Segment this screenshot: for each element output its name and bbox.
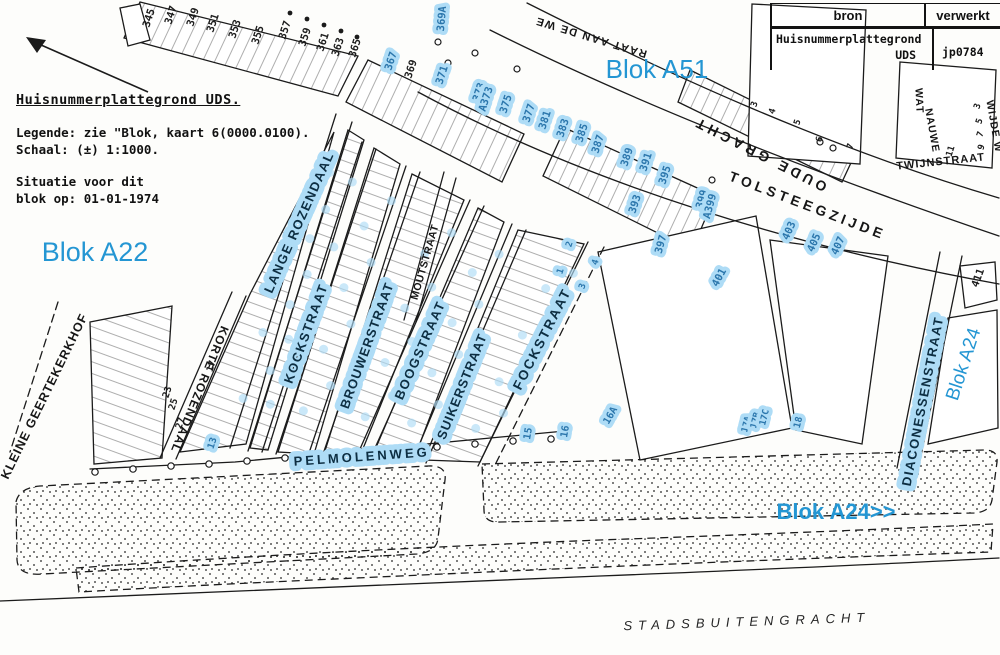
street-label-kleine-geertekerkhof: KLEINE GEERTEKERKHOF — [0, 311, 91, 481]
highlight-dot — [360, 222, 369, 231]
highlight-dot — [474, 300, 483, 309]
legend-title: Huisnummerplattegrond UDS. — [16, 92, 310, 108]
highlight-dot — [541, 284, 550, 293]
legend-line: Schaal: (±) 1:1000. — [16, 141, 310, 158]
highlight-dot — [321, 205, 330, 214]
info-table-header: bron verwerkt — [772, 4, 1000, 29]
header-verwerkt: verwerkt — [924, 4, 1000, 26]
highlight-dot — [299, 406, 308, 415]
map-canvas: KLEINE GEERTEKERKHOFKORTE ROZENDAALLANGE… — [0, 0, 1000, 655]
highlight-dot — [427, 368, 436, 377]
house-number: 3 — [578, 282, 589, 290]
highlight-dot — [266, 400, 275, 409]
highlight-dot — [319, 345, 328, 354]
highlight-dot — [447, 228, 456, 237]
info-table-row: Huisnummerplattegrond UDS jp0784 — [772, 29, 1000, 70]
highlight-dot — [448, 318, 457, 327]
house-number: 25 — [167, 397, 181, 412]
header-bron: bron — [772, 4, 924, 26]
house-number: 365 — [347, 37, 364, 59]
legend-line: Legende: zie "Blok, kaart 6(0000.0100). — [16, 124, 310, 141]
blok-label: Blok A51 — [606, 54, 709, 84]
house-number: 16A — [602, 405, 621, 426]
highlight-dot — [499, 409, 508, 418]
highlight-dot — [471, 424, 480, 433]
house-number: 23 — [161, 385, 175, 400]
highlight-dot — [468, 268, 477, 277]
highlight-dot — [348, 178, 357, 187]
info-table: bron verwerkt Huisnummerplattegrond UDS … — [770, 3, 1000, 70]
highlight-dot — [305, 234, 314, 243]
highlight-dot — [339, 283, 348, 292]
highlight-dot — [361, 412, 370, 421]
highlight-dot — [346, 320, 355, 329]
house-number: 369A — [435, 5, 449, 32]
legend-line: Situatie voor dit — [16, 173, 310, 190]
house-number: 357 — [277, 19, 294, 41]
highlight-dot — [495, 377, 504, 386]
house-number: 15 — [522, 427, 535, 441]
highlight-dot — [407, 419, 416, 428]
highlight-dot — [495, 250, 504, 259]
house-number: 369 — [403, 58, 420, 80]
highlight-dot — [266, 366, 275, 375]
street-label-partial: RAAT AAN DE WE — [534, 14, 649, 59]
house-number: 367 — [383, 50, 400, 72]
verwerkt-value: jp0784 — [932, 29, 1000, 70]
street-label-wat: WAT — [912, 88, 925, 114]
house-number: 16 — [559, 425, 572, 439]
house-number: 381 — [537, 109, 554, 131]
house-number: 375 — [498, 93, 515, 115]
source-name: Huisnummerplattegrond — [776, 32, 928, 46]
highlight-dot — [387, 196, 396, 205]
source-name-2: UDS — [776, 48, 928, 62]
house-number: 371 — [434, 64, 451, 86]
highlight-dot — [518, 331, 527, 340]
highlight-dot — [427, 283, 436, 292]
highlight-dot — [454, 350, 463, 359]
highlight-dot — [329, 242, 338, 251]
highlight-dot — [326, 381, 335, 390]
highlight-dot — [303, 270, 312, 279]
blok-label: Blok A24>> — [776, 499, 895, 524]
highlight-dot — [434, 400, 443, 409]
blok-label: Blok A22 — [42, 237, 149, 267]
highlight-dot — [286, 300, 295, 309]
highlight-dot — [239, 394, 248, 403]
legend-line: blok op: 01-01-1974 — [16, 190, 310, 207]
highlight-dot — [569, 269, 578, 278]
highlight-dot — [381, 358, 390, 367]
highlight-dot — [258, 328, 267, 337]
waterway-label: STADSBUITENGRACHT — [623, 610, 870, 634]
highlight-dot — [367, 258, 376, 267]
highlight-dot — [400, 304, 409, 313]
legend: Huisnummerplattegrond UDS. Legende: zie … — [16, 92, 310, 207]
house-number: 377 — [521, 102, 538, 124]
highlight-dot — [284, 335, 293, 344]
